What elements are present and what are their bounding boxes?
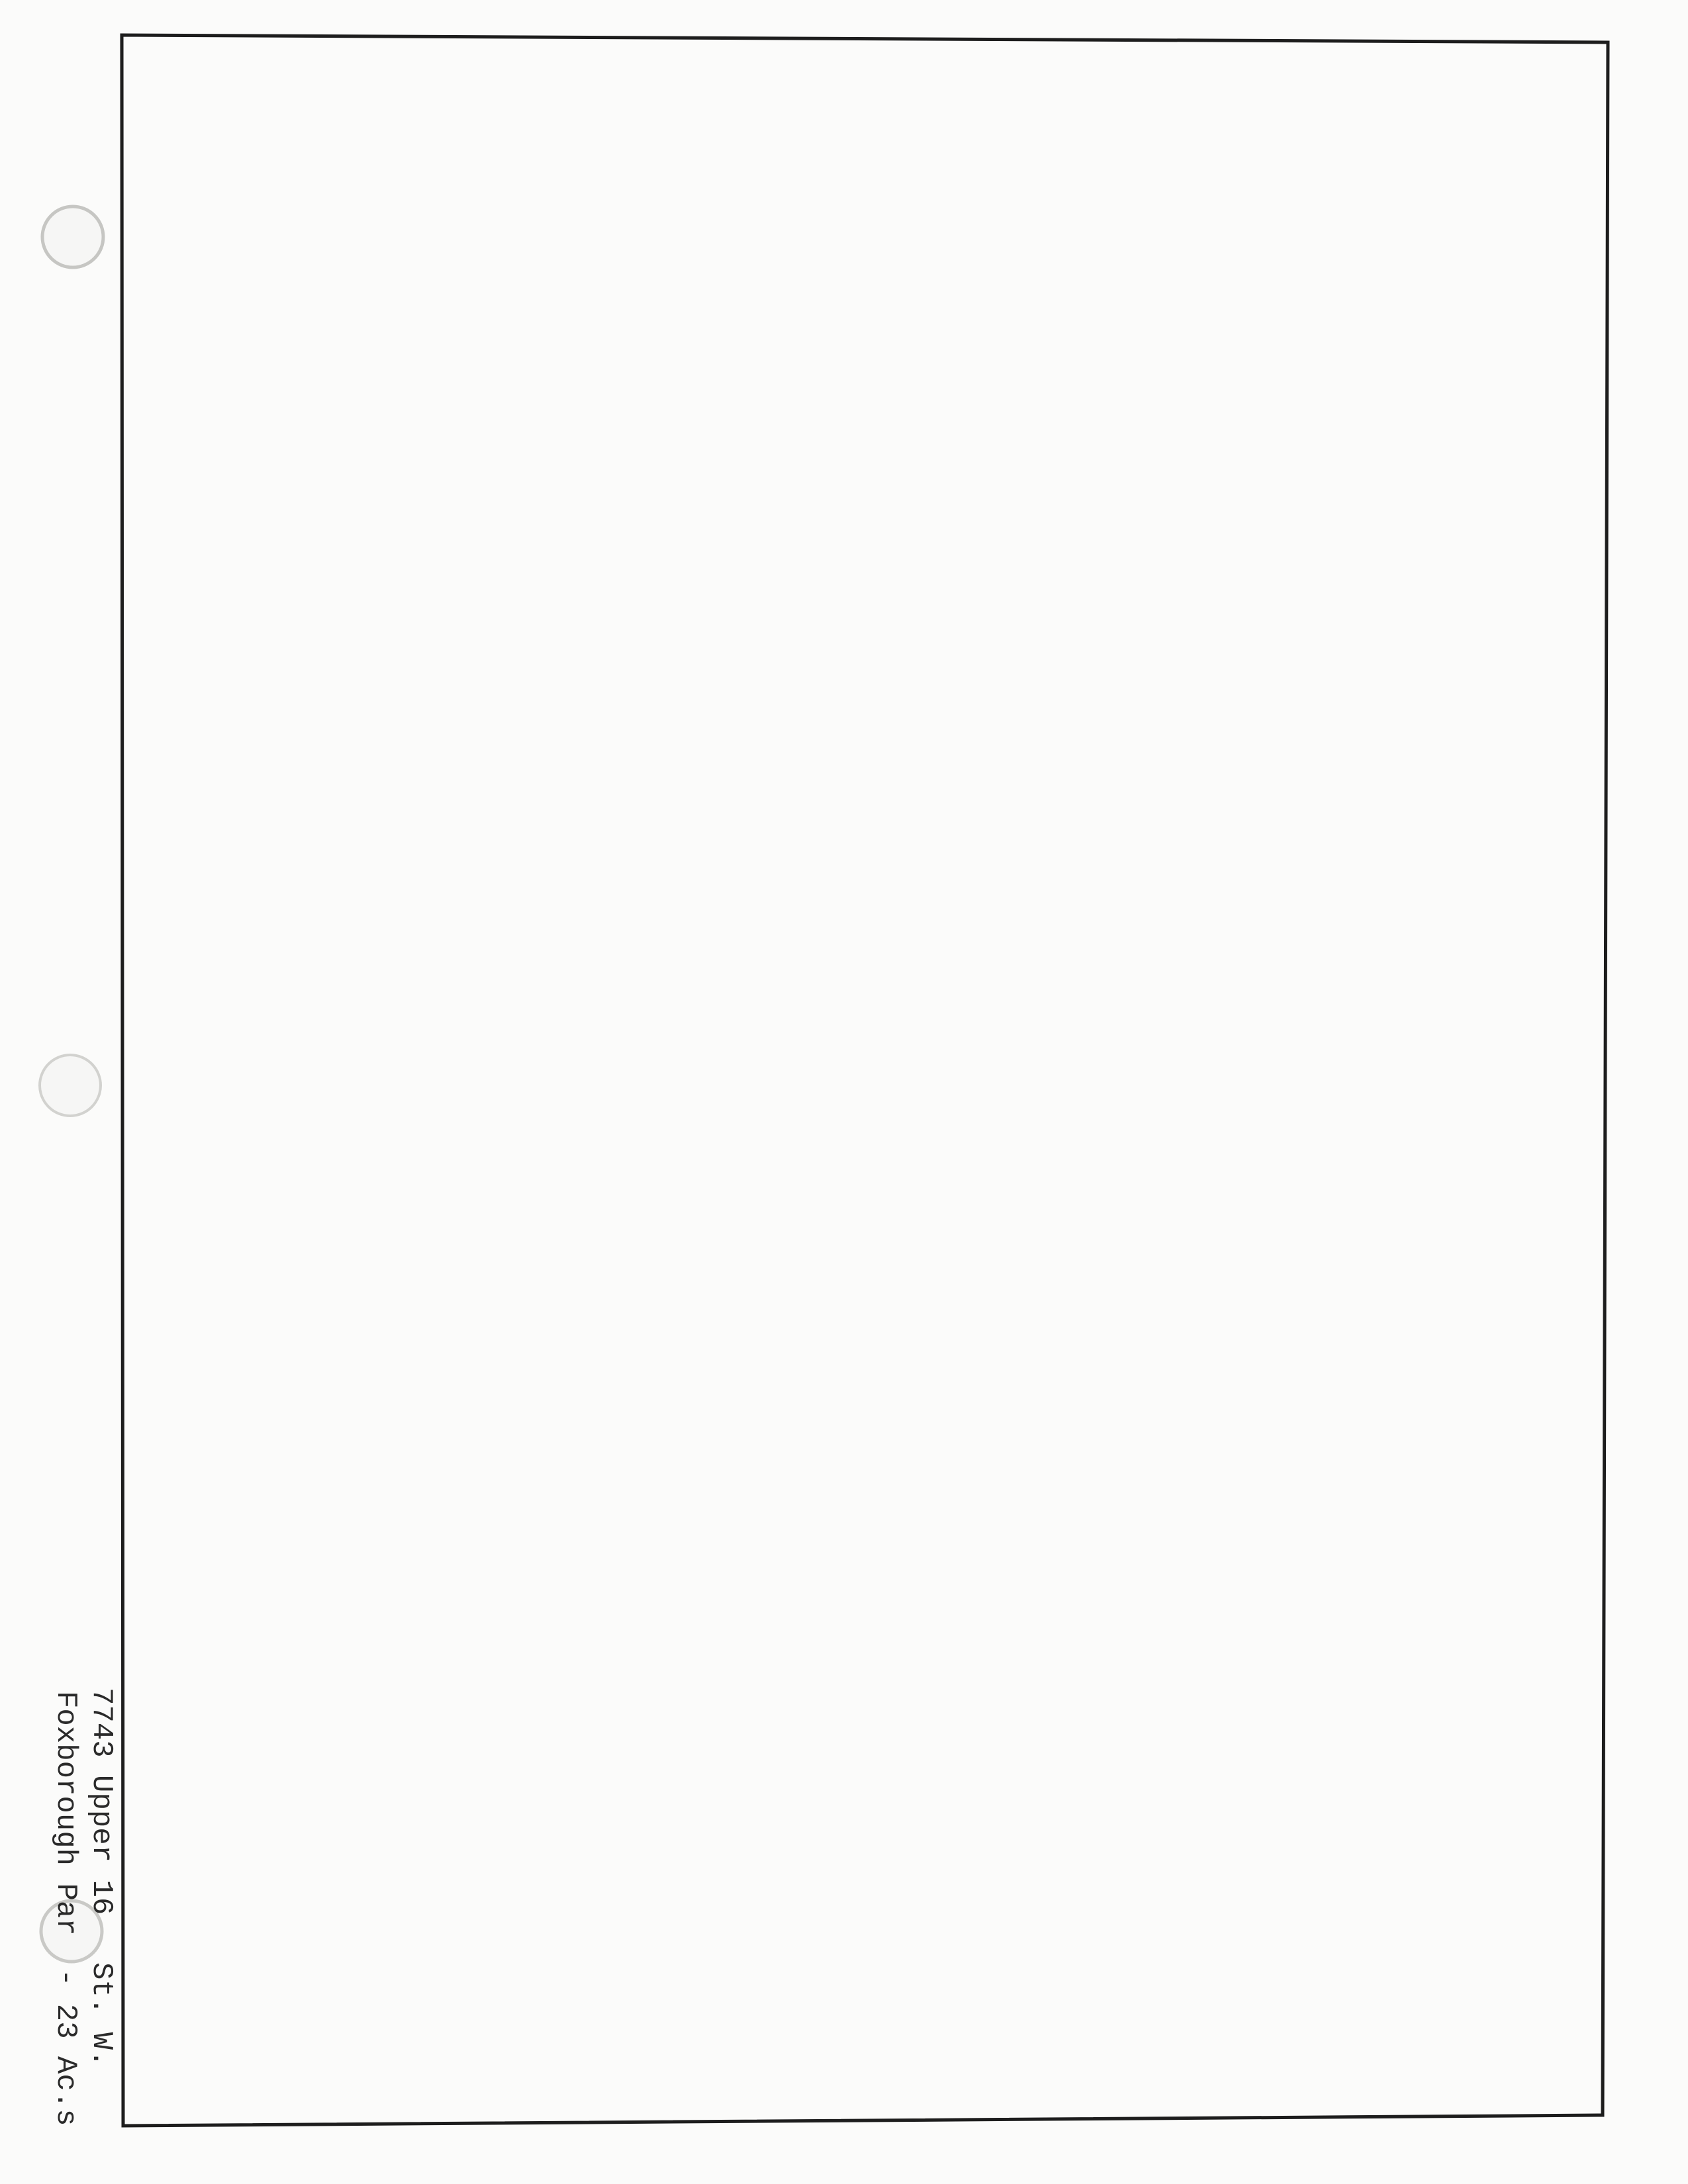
svg-text:- 23 Ac.s: - 23 Ac.s xyxy=(49,1969,82,2126)
svg-text:7743 Upper 16: 7743 Upper 16 xyxy=(85,1688,118,1915)
svg-text:St. W.: St. W. xyxy=(85,1962,118,2067)
svg-text:Foxborough Par: Foxborough Par xyxy=(49,1691,82,1936)
